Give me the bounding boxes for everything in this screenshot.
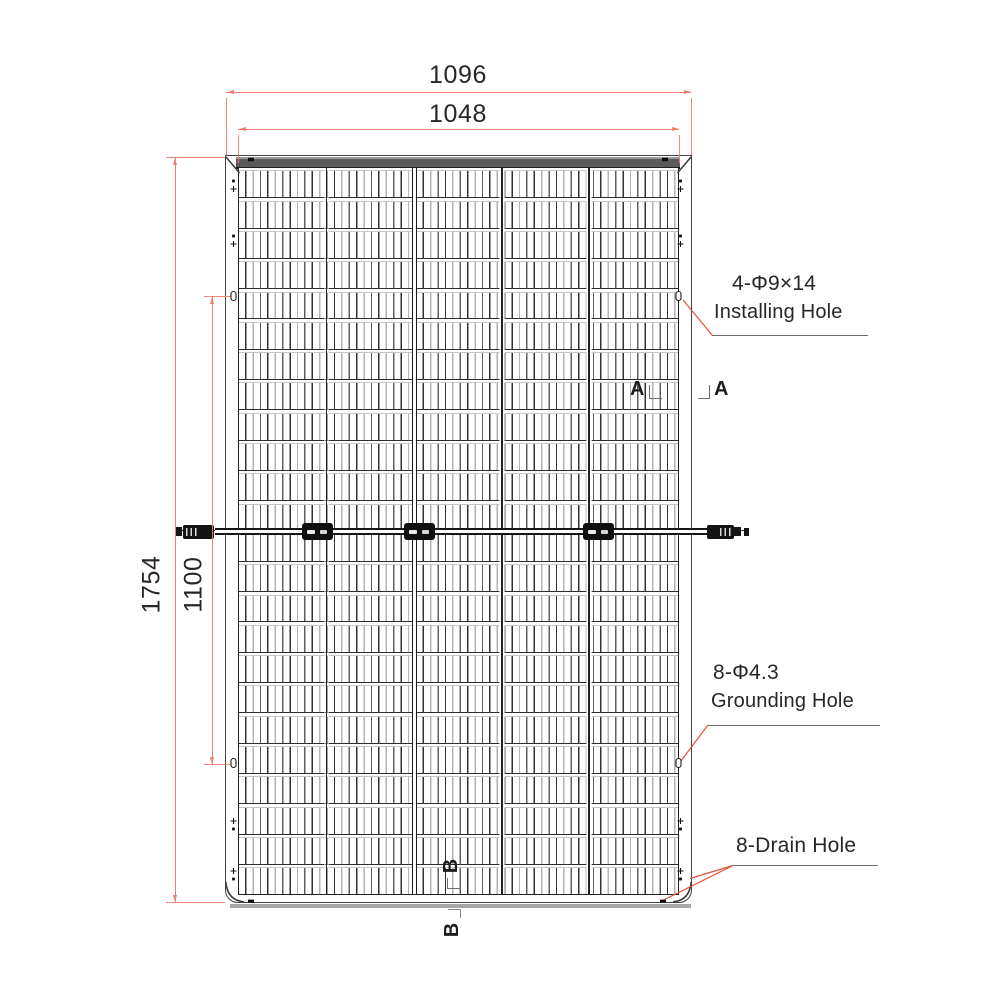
cell-row — [239, 379, 678, 409]
cell-row — [239, 409, 678, 439]
cable-connector-right — [707, 525, 734, 539]
junction-box — [583, 523, 614, 540]
cable-segment — [215, 528, 303, 535]
drain-hole-underline — [733, 865, 878, 866]
cell-row — [239, 197, 678, 227]
cable-segment — [614, 528, 708, 535]
cell-row — [239, 288, 678, 318]
dim-text-overall-height: 1754 — [138, 530, 167, 640]
cell-row — [239, 682, 678, 712]
dim-arrow — [210, 757, 214, 764]
cell-row — [239, 773, 678, 803]
cell-row — [239, 621, 678, 651]
dim-ext — [691, 98, 692, 155]
installing-hole-underline — [712, 335, 868, 336]
cable-segment — [434, 528, 584, 535]
dim-ext — [226, 98, 227, 155]
dim-arrow — [173, 895, 177, 902]
cell-row — [239, 258, 678, 288]
dim-arrow — [239, 127, 246, 131]
cell-row — [239, 228, 678, 258]
cell-row — [239, 561, 678, 591]
section-b-cut-mark-inner — [447, 878, 461, 889]
dim-arrow — [173, 158, 177, 165]
junction-box — [302, 523, 333, 540]
installing-hole-label: Installing Hole — [714, 301, 843, 324]
cell-row — [239, 168, 678, 197]
section-b-cut-mark-outer — [448, 909, 461, 918]
section-a-cut-mark-inner — [649, 385, 662, 399]
dim-text-hole-spacing: 1100 — [180, 530, 209, 640]
cell-row — [239, 440, 678, 470]
section-b-letter-outer: B — [441, 921, 463, 939]
cable-connector-right-cap — [744, 528, 750, 536]
dim-ext — [238, 135, 239, 163]
solar-module-technical-drawing: 1096 1048 1754 1100 4-Φ9×14 Installing H… — [0, 0, 1000, 1000]
dim-arrow — [227, 90, 234, 94]
grounding-hole-underline — [708, 725, 880, 726]
grounding-hole-spec: 8-Φ4.3 — [713, 661, 779, 685]
dim-line-hole-spacing — [212, 296, 213, 764]
cell-row — [239, 318, 678, 348]
dim-ext — [204, 296, 234, 297]
cell-row — [239, 591, 678, 621]
dim-line-overall-height — [175, 157, 176, 902]
leader-drain-hole-1 — [690, 866, 733, 879]
cell-row — [239, 712, 678, 742]
module-bottom-frame-bar — [230, 904, 691, 908]
dim-line-laminate-width — [238, 129, 679, 130]
cell-row — [239, 652, 678, 682]
section-a-letter-outer: A — [714, 378, 728, 401]
grounding-hole-label: Grounding Hole — [711, 690, 854, 713]
dim-line-overall-width — [226, 92, 691, 93]
dim-arrow — [684, 90, 691, 94]
dim-ext — [166, 902, 225, 903]
section-b-letter-inner: B — [440, 857, 460, 875]
dim-arrow — [672, 127, 679, 131]
dim-text-overall-width: 1096 — [403, 61, 513, 90]
cell-row — [239, 743, 678, 773]
dim-ext — [679, 135, 680, 163]
junction-box — [404, 523, 435, 540]
cell-row — [239, 470, 678, 500]
cable-segment — [333, 528, 405, 535]
dim-text-laminate-width: 1048 — [403, 100, 513, 129]
dim-ext — [204, 764, 234, 765]
dim-arrow — [210, 297, 214, 304]
section-a-letter-inner: A — [630, 378, 644, 401]
installing-hole-spec: 4-Φ9×14 — [732, 272, 816, 296]
cell-row — [239, 803, 678, 833]
drain-hole-label: 8-Drain Hole — [736, 834, 856, 858]
cell-row — [239, 349, 678, 379]
cable-connector-right-tip — [734, 527, 741, 536]
section-a-cut-mark-outer — [698, 385, 710, 399]
